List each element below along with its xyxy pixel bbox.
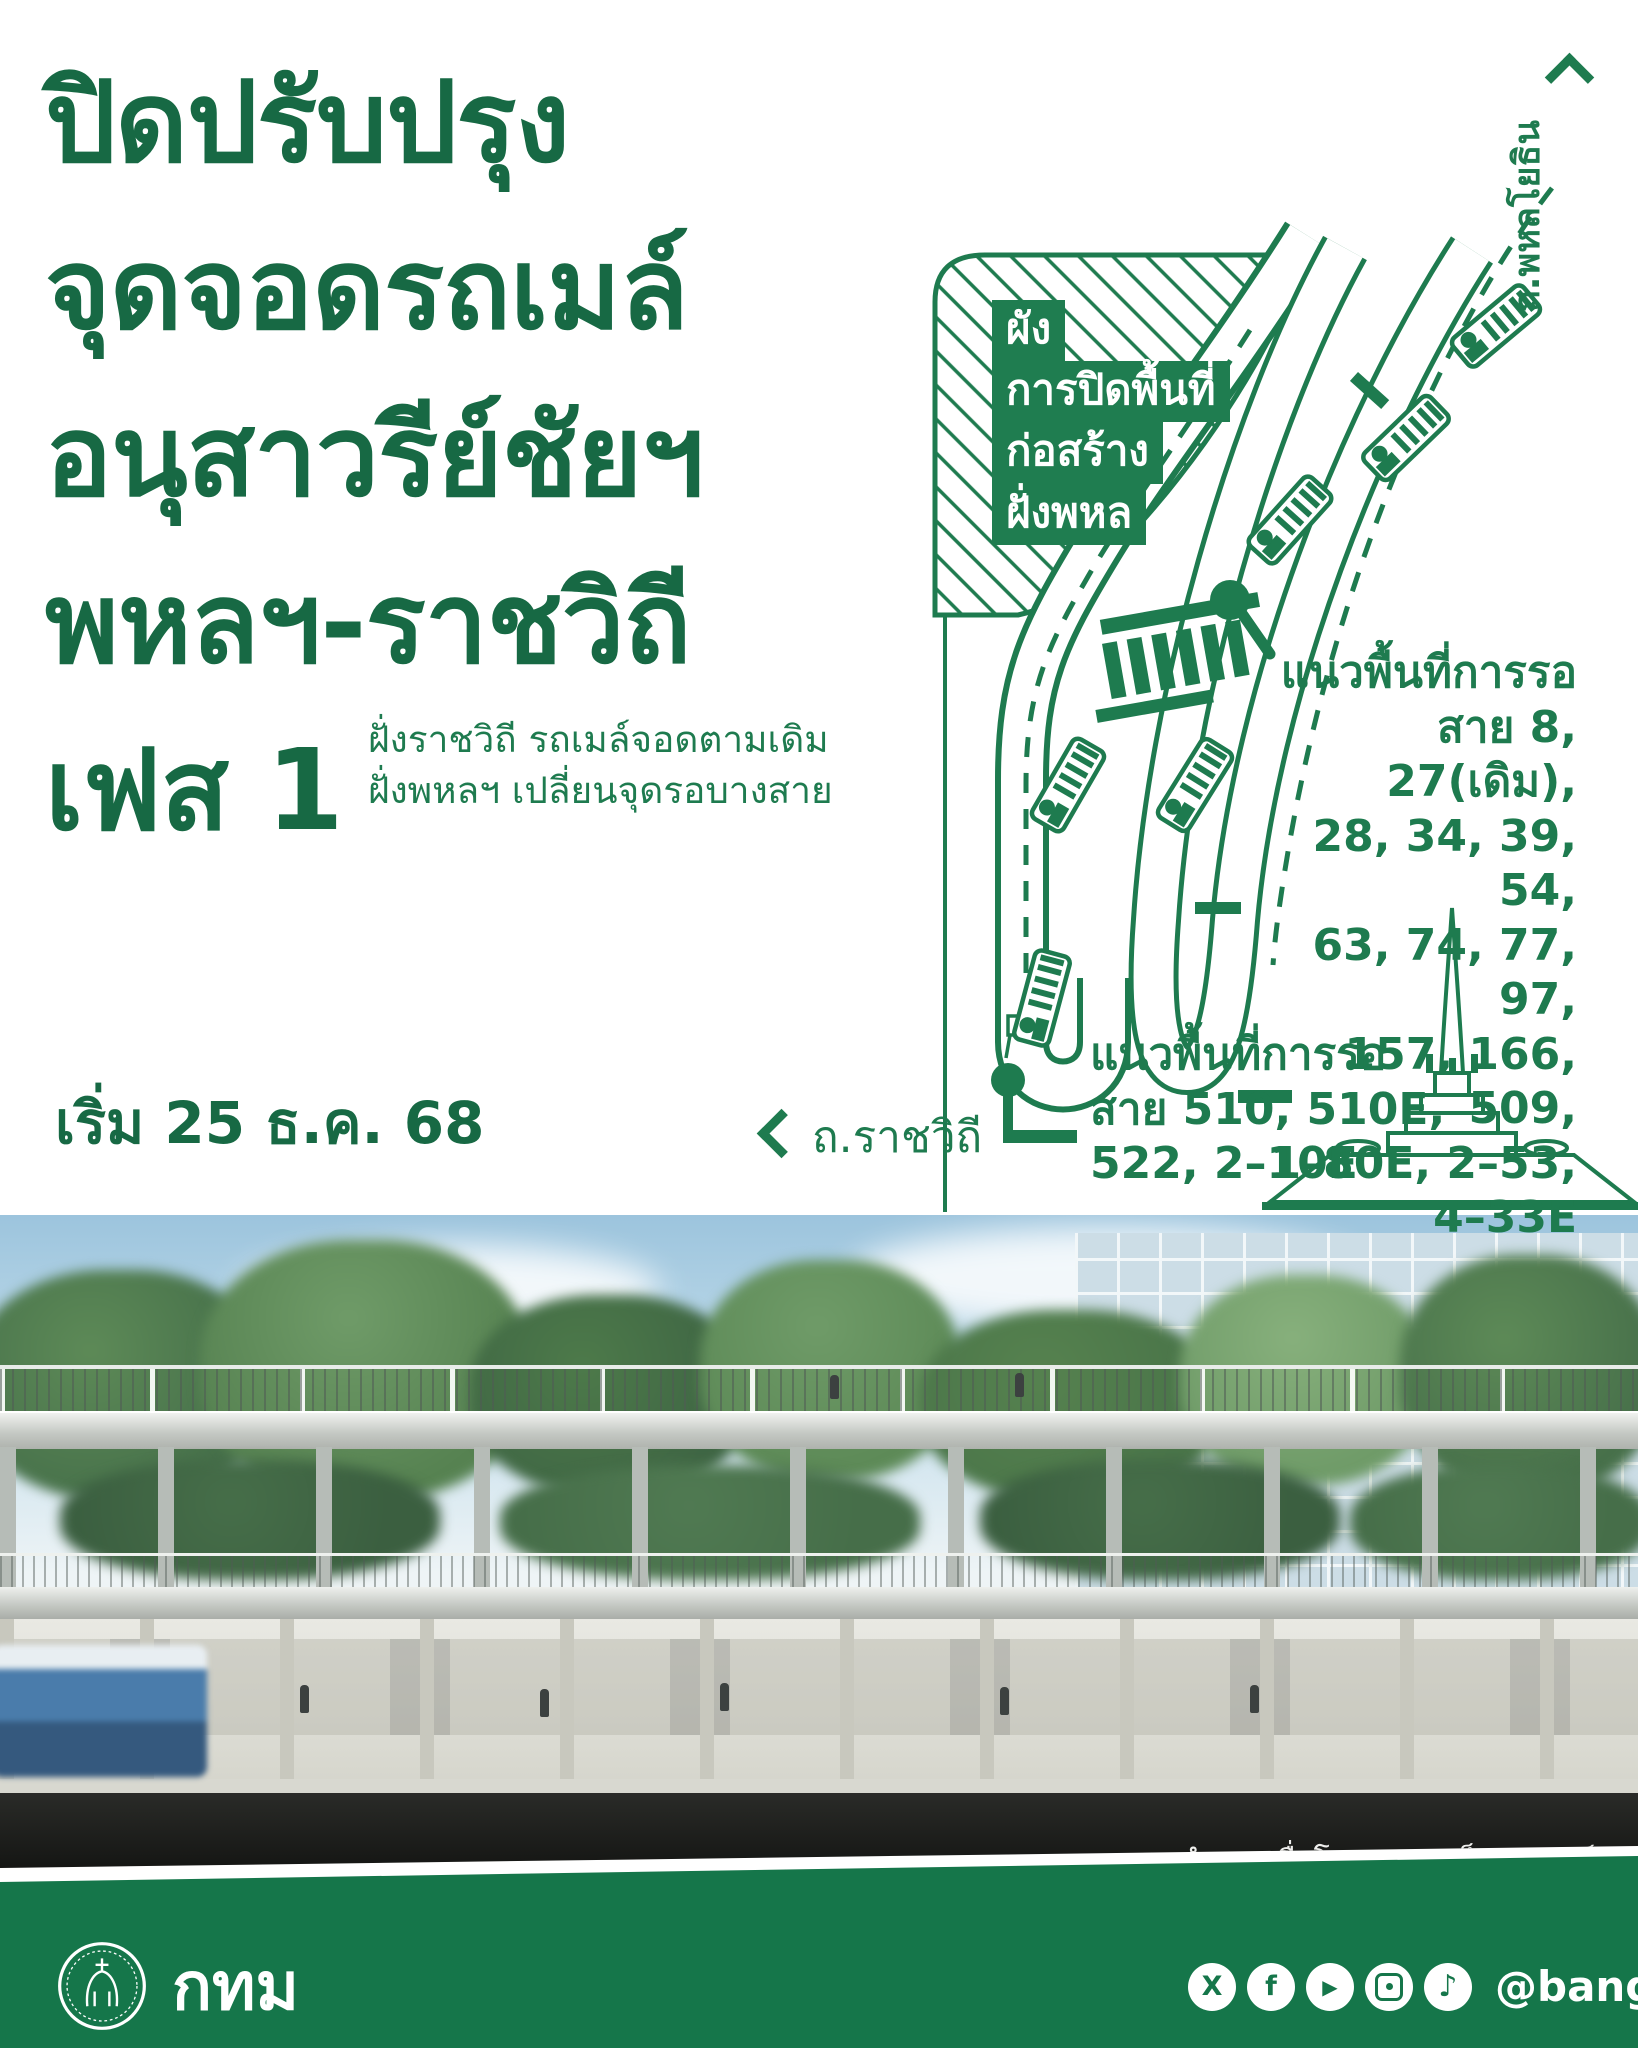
closure-label-line: การปิดพื้นที่ <box>992 361 1230 422</box>
x-icon: X <box>1188 1963 1236 2011</box>
route-line: 522, 2–10E <box>1090 1137 1445 1192</box>
route-line: 4–33E <box>1245 1191 1577 1246</box>
start-date: เริ่ม 25 ธ.ค. 68 <box>55 1076 484 1169</box>
ground-pillars <box>0 1619 1638 1779</box>
closure-label-line: ฝั่งพหล <box>992 484 1146 545</box>
instagram-icon <box>1365 1963 1413 2011</box>
route-line: 63, 74, 77, 97, <box>1245 919 1577 1028</box>
lower-walkway-deck <box>0 1587 1638 1619</box>
closure-label-line: ผัง <box>992 300 1065 361</box>
wait-area-title: แนวพื้นที่การรอ <box>1090 1028 1445 1083</box>
pedestrian <box>830 1375 839 1399</box>
pedestrian <box>1250 1685 1259 1713</box>
closure-area-label: ผัง การปิดพื้นที่ ก่อสร้าง ฝั่งพหล <box>992 300 1230 545</box>
route-line: 28, 34, 39, 54, <box>1245 810 1577 919</box>
road-tick <box>1195 902 1241 914</box>
upper-walkway-railing <box>0 1365 1638 1415</box>
route-line: สาย 510, 510E, <box>1090 1083 1445 1138</box>
pedestrian <box>1015 1373 1024 1397</box>
wait-area-ratchawithi-list: แนวพื้นที่การรอ สาย 510, 510E, 522, 2–10… <box>1090 1028 1445 1192</box>
route-line: สาย 8, 27(เดิม), <box>1245 701 1577 810</box>
pedestrian <box>720 1683 729 1711</box>
headline-line-4: พหลฯ-ราชวิถี <box>45 541 703 708</box>
bma-seal-logo <box>56 1940 148 2032</box>
wait-area-title: แนวพื้นที่การรอ <box>1245 646 1577 701</box>
social-handle: @bangkokbma <box>1495 1962 1638 2011</box>
road-label-phahonyothin: ถ.พหลโยธิน <box>1498 52 1555 312</box>
tiktok-icon: ♪ <box>1424 1963 1472 2011</box>
headline-line-3: อนุสาวรีย์ชัยฯ <box>45 374 703 541</box>
facebook-icon: f <box>1247 1963 1295 2011</box>
lower-walkway-railing <box>0 1553 1638 1590</box>
rendering-bus <box>0 1645 207 1777</box>
youtube-icon: ▶ <box>1306 1963 1354 2011</box>
pedestrian <box>540 1689 549 1717</box>
headline-line-1: ปิดปรับปรุง <box>45 40 703 207</box>
road-label-ratchawithi: ถ.ราชวิถี <box>812 1102 982 1172</box>
pedestrian <box>300 1685 309 1713</box>
closure-label-line: ก่อสร้าง <box>992 422 1163 483</box>
upper-walkway-deck <box>0 1411 1638 1449</box>
caption-band <box>0 1793 1638 1868</box>
poster: ปิดปรับปรุง จุดจอดรถเมล์ อนุสาวรีย์ชัยฯ … <box>0 0 1638 2048</box>
map-pin <box>991 1063 1025 1097</box>
social-row: X f ▶ ♪ @bangkokbma <box>1188 1962 1638 2011</box>
org-name: กทม <box>172 1934 299 2039</box>
project-rendering-photo: ภาพจำลองเมื่อโครงการเสร็จสมบูรณ์ <box>0 1215 1638 1868</box>
headline-line-2: จุดจอดรถเมล์ <box>45 207 703 374</box>
pedestrian <box>1000 1687 1009 1715</box>
